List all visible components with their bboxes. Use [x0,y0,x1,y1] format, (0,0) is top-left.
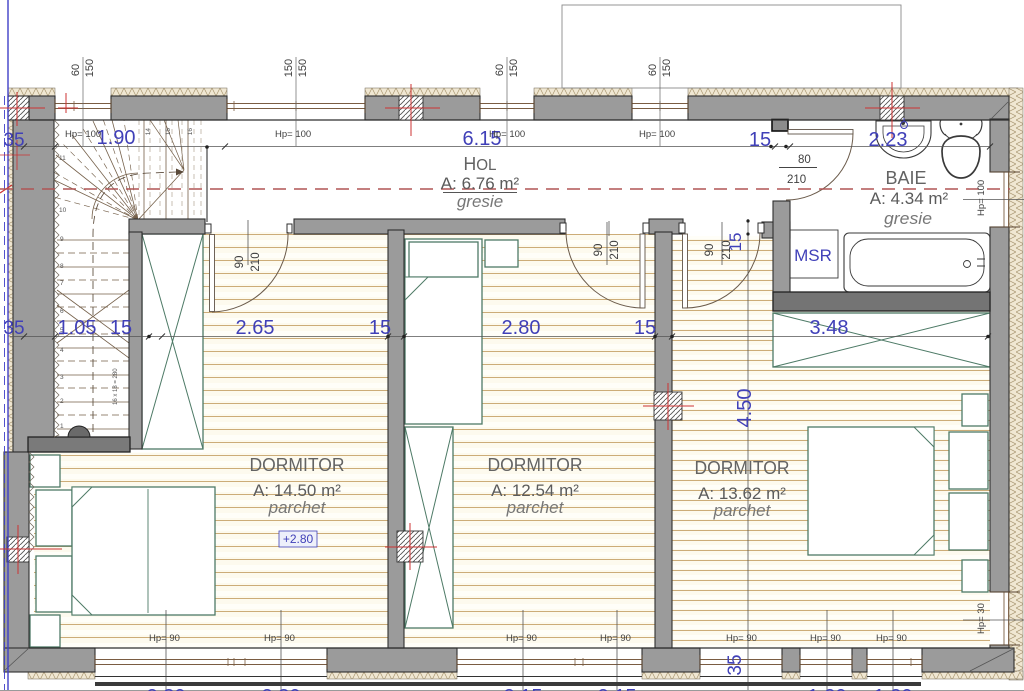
svg-text:1.20: 1.20 [874,686,913,691]
svg-text:60: 60 [494,64,506,76]
svg-text:4.50: 4.50 [734,389,756,428]
svg-text:2.80: 2.80 [502,317,541,339]
svg-text:parchet: parchet [713,501,772,520]
svg-text:parchet: parchet [506,498,565,517]
svg-text:Hp= 90: Hp= 90 [600,633,631,644]
svg-text:3.48: 3.48 [810,317,849,339]
svg-text:Hp= 90: Hp= 90 [876,633,907,644]
svg-text:Hp= 90: Hp= 90 [264,633,295,644]
svg-text:2: 2 [60,398,64,405]
svg-text:90: 90 [593,244,605,257]
svg-text:2.15: 2.15 [504,686,543,691]
svg-text:60: 60 [647,64,659,76]
svg-text:Hp= 90: Hp= 90 [726,633,757,644]
svg-text:Hp= 30: Hp= 30 [976,603,987,634]
svg-text:11: 11 [59,155,66,162]
svg-text:HOL: HOL [464,154,497,174]
svg-text:8: 8 [60,263,64,270]
svg-text:1.05: 1.05 [58,317,97,339]
svg-text:Hp= 100: Hp= 100 [976,180,987,216]
svg-text:10: 10 [59,207,67,214]
svg-text:2.30: 2.30 [147,686,186,691]
svg-text:150: 150 [84,59,96,77]
svg-text:6: 6 [60,308,64,315]
svg-text:15: 15 [110,317,132,339]
svg-text:7: 7 [60,280,64,287]
svg-text:2.23: 2.23 [869,129,908,151]
svg-text:Hp= 100: Hp= 100 [639,129,675,140]
svg-text:4: 4 [60,347,64,354]
svg-text:150: 150 [283,59,295,77]
svg-text:parchet: parchet [268,498,327,517]
svg-text:35: 35 [725,654,746,675]
svg-text:DORMITOR: DORMITOR [250,455,345,475]
svg-text:MSR: MSR [794,246,832,265]
svg-text:DORMITOR: DORMITOR [695,458,790,478]
svg-text:60: 60 [70,64,82,76]
svg-text:2.15: 2.15 [598,686,637,691]
svg-text:16 x 18 = 280: 16 x 18 = 280 [113,368,119,405]
svg-text:1: 1 [60,423,64,430]
svg-text:Hp= 100: Hp= 100 [489,129,525,140]
svg-text:Hp= 90: Hp= 90 [149,633,180,644]
svg-text:14: 14 [145,128,152,136]
svg-text:150: 150 [297,59,309,77]
svg-text:16: 16 [187,128,194,136]
svg-text:9: 9 [60,236,64,243]
svg-text:Hp= 90: Hp= 90 [810,633,841,644]
svg-text:Hp= 90: Hp= 90 [506,633,537,644]
svg-text:gresie: gresie [884,209,932,228]
svg-text:15: 15 [165,128,172,136]
svg-text:2.65: 2.65 [236,317,275,339]
svg-text:15: 15 [634,317,656,339]
svg-text:Hp= 100: Hp= 100 [65,129,101,140]
svg-text:+2.80: +2.80 [283,532,314,546]
svg-text:90: 90 [704,244,716,257]
svg-text:1.90: 1.90 [97,127,136,149]
svg-text:150: 150 [661,59,673,77]
svg-text:35: 35 [3,130,24,151]
svg-text:210: 210 [250,252,262,271]
svg-text:1.20: 1.20 [808,686,847,691]
svg-text:210: 210 [721,240,733,259]
svg-text:gresie: gresie [457,192,503,211]
svg-text:A: 6.76 m²: A: 6.76 m² [441,174,520,193]
svg-text:3: 3 [60,374,64,381]
svg-text:210: 210 [787,174,806,186]
svg-text:90: 90 [234,256,246,269]
svg-text:BAIE: BAIE [886,168,927,188]
svg-text:150: 150 [508,59,520,77]
svg-text:A: 4.34 m²: A: 4.34 m² [870,189,949,208]
svg-text:210: 210 [609,240,621,259]
svg-text:15: 15 [749,129,771,151]
svg-text:Hp= 100: Hp= 100 [275,129,311,140]
svg-text:2.30: 2.30 [262,686,301,691]
svg-text:80: 80 [798,154,811,166]
svg-text:35: 35 [3,318,24,339]
svg-text:DORMITOR: DORMITOR [488,455,583,475]
svg-text:15: 15 [369,317,391,339]
